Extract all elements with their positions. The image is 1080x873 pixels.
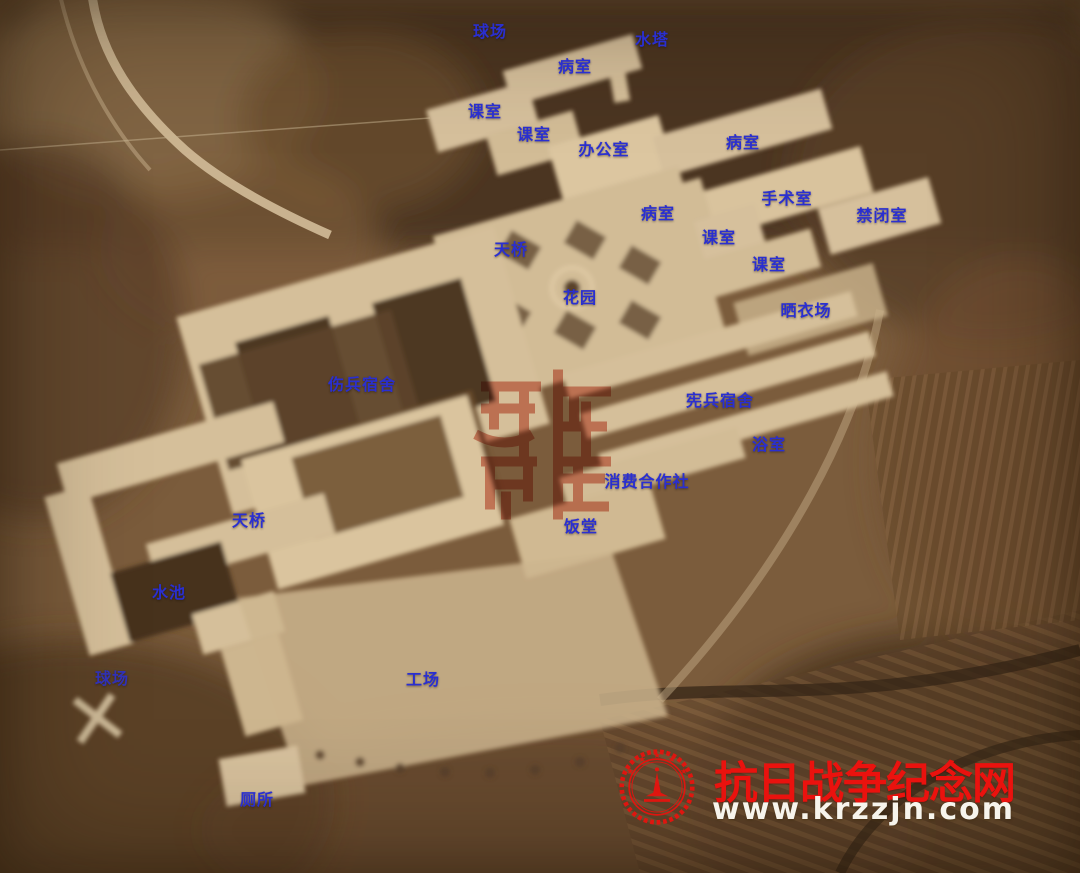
map-label: 病室 [641,200,675,224]
map-label: 禁闭室 [856,202,907,226]
map-label: 饭堂 [564,513,598,537]
map-label: 球场 [473,18,507,42]
map-labels-layer: 球场水塔病室课室课室办公室病室手术室禁闭室病室课室课室天桥花园晒衣场伤兵宿舍宪兵… [0,0,1080,873]
map-label: 课室 [468,98,502,122]
map-label: 水池 [152,579,186,603]
map-label: 天桥 [232,507,266,531]
map-label: 伤兵宿舍 [328,371,396,395]
map-label: 浴室 [752,431,786,455]
annotated-aerial-photo: 球场水塔病室课室课室办公室病室手术室禁闭室病室课室课室天桥花园晒衣场伤兵宿舍宪兵… [0,0,1080,873]
map-label: 办公室 [578,136,629,160]
map-label: 宪兵宿舍 [686,387,754,411]
map-label: 课室 [517,121,551,145]
map-label: 病室 [558,53,592,77]
map-label: 课室 [752,251,786,275]
map-label: 病室 [726,129,760,153]
map-label: 课室 [702,224,736,248]
map-label: 天桥 [494,236,528,260]
map-label: 晒衣场 [780,297,831,321]
map-label: 手术室 [761,185,812,209]
map-label: 球场 [95,665,129,689]
map-label: 消费合作社 [604,468,689,492]
map-label: 水塔 [635,26,669,50]
map-label: 厕所 [240,786,274,810]
map-label: 花园 [563,284,597,308]
map-label: 工场 [406,666,440,690]
